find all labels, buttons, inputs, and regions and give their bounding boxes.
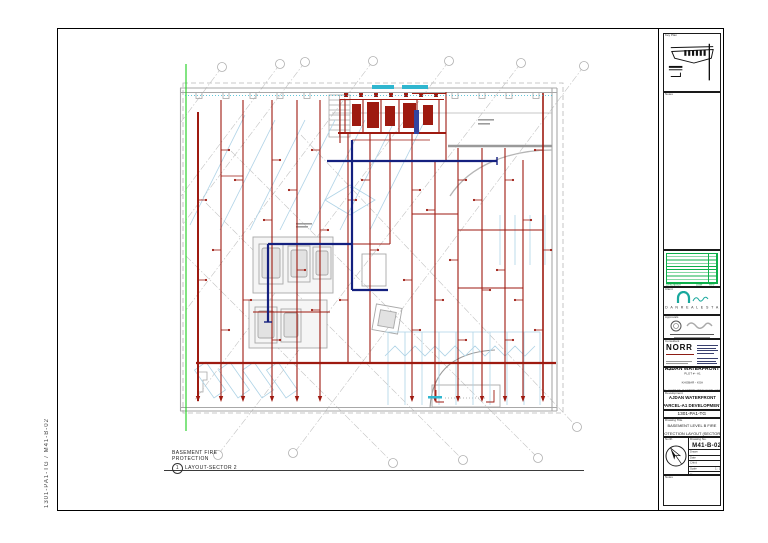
development-line1: AJDAN WATERFRONT (668, 396, 715, 402)
bottom-notes-box: Notes (663, 475, 721, 506)
north-cell: North (664, 438, 689, 474)
drawing-title-box: Drawing Title BASEMENT LEVEL B FIRE PROT… (663, 418, 721, 437)
stamps-label: Approvals (665, 316, 678, 319)
stamps-box: Approvals (663, 315, 721, 339)
client-label: Client (665, 288, 673, 291)
key-plan-sketch (664, 38, 720, 90)
consultant-label: Consultant (665, 340, 679, 343)
drawing-no-block: North Drawing No. M41-B-02 Drawn- Date- … (663, 437, 721, 475)
stamps-fine-print (670, 334, 714, 338)
revision-desc-header: Description (666, 284, 681, 287)
field-chkd-label: Chk'd (690, 462, 697, 465)
ajdan-logo-icon (674, 291, 710, 304)
key-plan-box: Key Plan (663, 33, 721, 92)
client-name: A J D A N R E A L E S T A T E (663, 306, 721, 310)
field-scale-label: Scale (690, 468, 697, 471)
project-address-2: KHOBAR - KSA (681, 381, 702, 385)
project-address-1: PLOT # - A1 (684, 372, 700, 376)
field-scale-value: 1 : 150 (715, 468, 721, 471)
field-drawn-label: Drawn (690, 451, 698, 454)
view-title-line3: LAYOUT-SECTOR 2 (185, 465, 237, 471)
drawing-no-value: M41-B-02 (689, 443, 721, 449)
project-box: Project AJDAN WATERFRONT PLOT # - A1 KHO… (663, 367, 721, 391)
drawing-title-line1: BASEMENT LEVEL B FIRE (668, 424, 717, 429)
development-label: Development (665, 392, 683, 395)
client-box: Client A J D A N R E A L E S T A T E (663, 287, 721, 315)
revision-col-divider2 (716, 253, 717, 282)
titleblock-divider (658, 28, 659, 511)
project-no-value: 1301-PA1-TG (678, 411, 707, 416)
sheet-border (57, 28, 724, 511)
drawing-no-cell: Drawing No. M41-B-02 Drawn- Date- Chk'd-… (689, 438, 721, 474)
plot-stamp: 1301-PA1-TG / M41-B-02 (44, 392, 50, 508)
revision-rows (666, 253, 718, 284)
drawing-no-label: Drawing No. (690, 438, 707, 441)
revision-col-divider (708, 253, 709, 282)
notes-box: Notes (663, 92, 721, 250)
bottom-notes-label: Notes (665, 476, 673, 479)
revision-date-header: Date (696, 284, 702, 287)
development-line2: PARCEL-A1 DEVELOPMENT (663, 403, 721, 409)
revision-rev-header: Rev (709, 284, 714, 287)
north-label: North (665, 438, 672, 441)
development-box: Development AJDAN WATERFRONT PARCEL-A1 D… (663, 391, 721, 410)
approval-stamps-icon (667, 320, 717, 332)
north-arrow-icon (664, 444, 688, 468)
consultant-box: Consultant NORR (663, 339, 721, 367)
revision-table: Description Date Rev (663, 250, 721, 287)
key-plan-label: Key Plan (665, 34, 677, 37)
norr-logo-rule (666, 354, 694, 355)
view-title: BASEMENT FIRE PROTECTION 1 LAYOUT-SECTOR… (172, 450, 237, 474)
consultant-contact-fine-print (697, 344, 718, 364)
drawing-sheet: 1301-PA1-TG / M41-B-02 BASEMENT FIRE PRO… (0, 0, 768, 543)
field-date-label: Date (690, 457, 696, 460)
norr-logo: NORR (666, 344, 694, 352)
view-tag-circle: 1 (172, 463, 183, 474)
drawing-title-label: Drawing Title (665, 419, 682, 422)
project-no-box: 1301-PA1-TG (663, 410, 721, 418)
notes-label: Notes (665, 93, 673, 96)
